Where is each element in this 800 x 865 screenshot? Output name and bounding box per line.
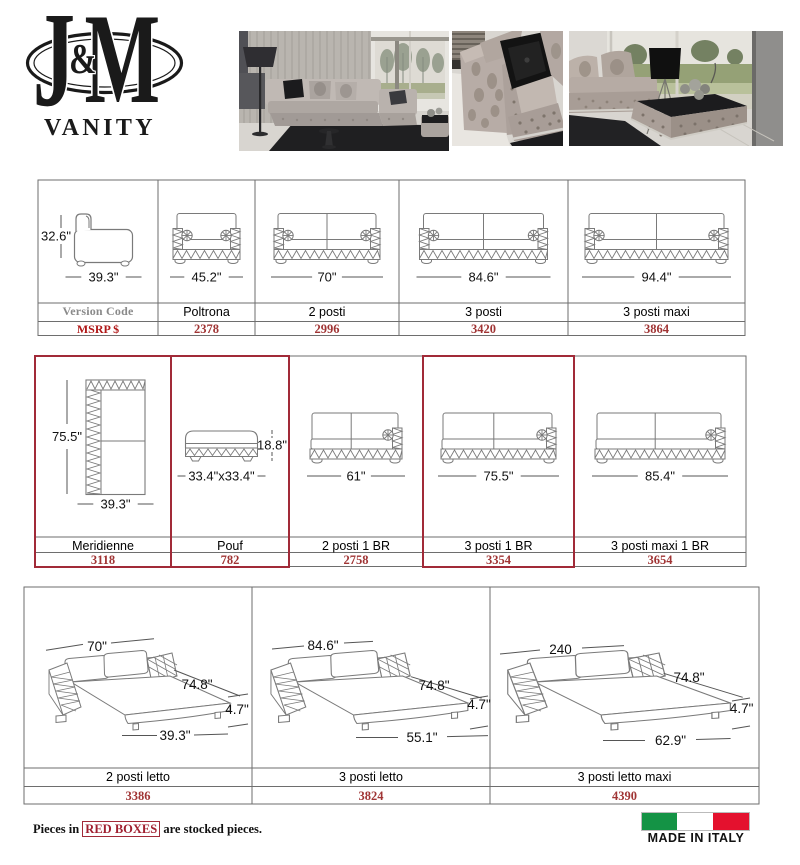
- svg-text:62.9": 62.9": [655, 733, 686, 748]
- svg-text:240: 240: [549, 642, 572, 657]
- svg-text:74.8": 74.8": [673, 670, 704, 685]
- svg-text:4.7": 4.7": [730, 701, 754, 716]
